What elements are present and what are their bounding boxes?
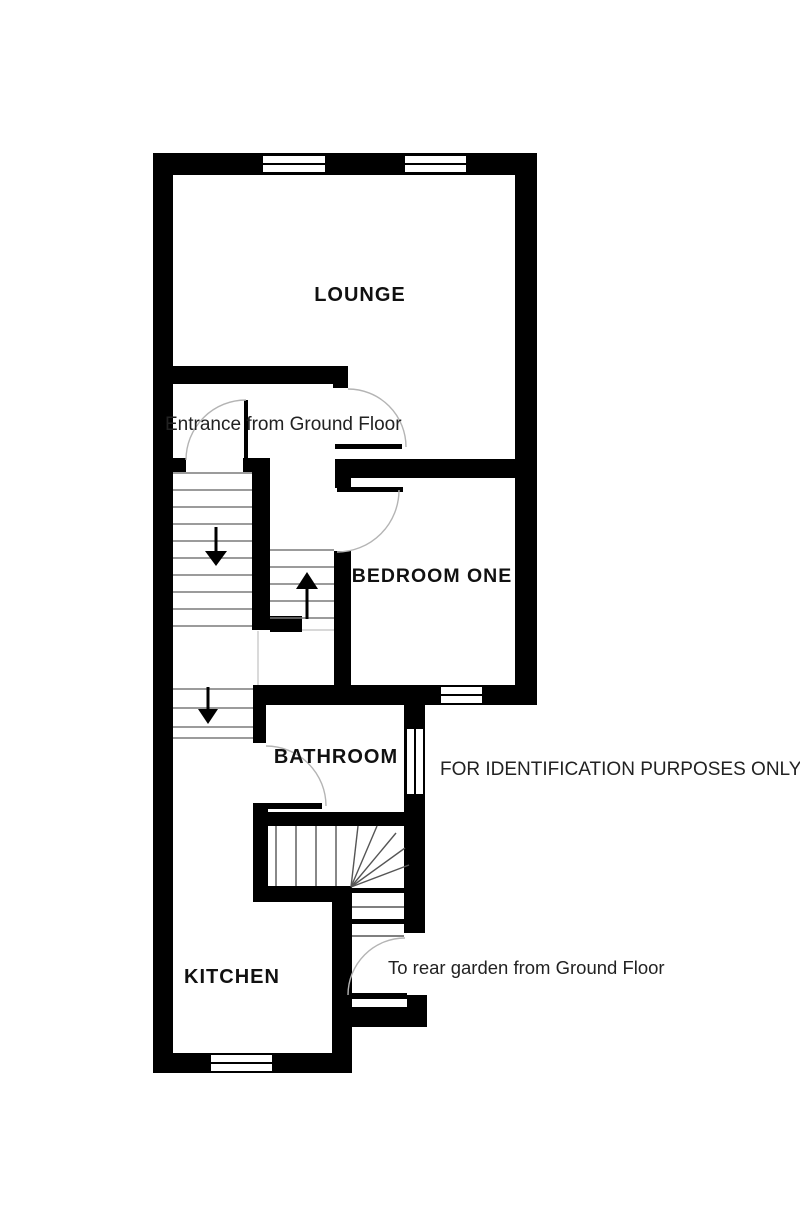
bedroom-door-arc (337, 490, 399, 552)
stair-step-edge-top (352, 888, 404, 893)
bathroom-right-wall (404, 685, 425, 933)
staircase-down-main (173, 473, 252, 626)
entrance-door-jamb-left (170, 458, 186, 472)
floorplan: LOUNGE BEDROOM ONE BATHROOM KITCHEN Entr… (0, 0, 800, 1228)
lounge-window-right (404, 155, 467, 173)
rear-garden-door-leaf (352, 993, 407, 999)
lounge-window-left (262, 155, 326, 173)
annotation-entrance: Entrance from Ground Floor (165, 414, 402, 436)
bedroom-left-wall-upper (335, 459, 351, 488)
stair-arrow-down-lower (198, 687, 218, 724)
lounge-door-jamb (333, 366, 348, 388)
annotation-identification: FOR IDENTIFICATION PURPOSES ONLY (440, 759, 800, 781)
kitchen-right-wall (332, 886, 352, 1073)
bathroom-door-leaf (266, 803, 322, 809)
bathroom-bottom-wall (266, 812, 410, 826)
lounge-bottom-wall (173, 366, 348, 384)
stair-arrow-down-main (205, 527, 227, 566)
room-label-bedroom-one: BEDROOM ONE (330, 565, 534, 588)
bedroom-window (440, 686, 483, 704)
stairwell-middle-wall (252, 458, 270, 630)
outer-wall-top (153, 153, 537, 175)
outer-wall-left (153, 153, 173, 1073)
floorplan-drawing (0, 0, 800, 1228)
room-label-bathroom: BATHROOM (254, 746, 418, 769)
landing-outline (258, 630, 334, 685)
outer-wall-right (515, 153, 537, 705)
bedroom-door-leaf (337, 487, 403, 492)
room-label-kitchen: KITCHEN (150, 966, 314, 989)
bedroom-bathroom-band-wall (253, 685, 537, 705)
stair-arrow-up (296, 572, 318, 619)
annotation-rear-garden: To rear garden from Ground Floor (388, 957, 665, 979)
stair-step-edge-mid (352, 919, 404, 924)
lounge-door-leaf (335, 444, 402, 449)
bathroom-left-wall (253, 685, 266, 743)
kitchen-window (210, 1054, 273, 1072)
bedroom-top-wall (345, 459, 517, 478)
entrance-door-jamb-right (243, 458, 265, 472)
room-label-lounge: LOUNGE (260, 284, 460, 307)
rear-corner-wall-horizontal (352, 1007, 427, 1027)
